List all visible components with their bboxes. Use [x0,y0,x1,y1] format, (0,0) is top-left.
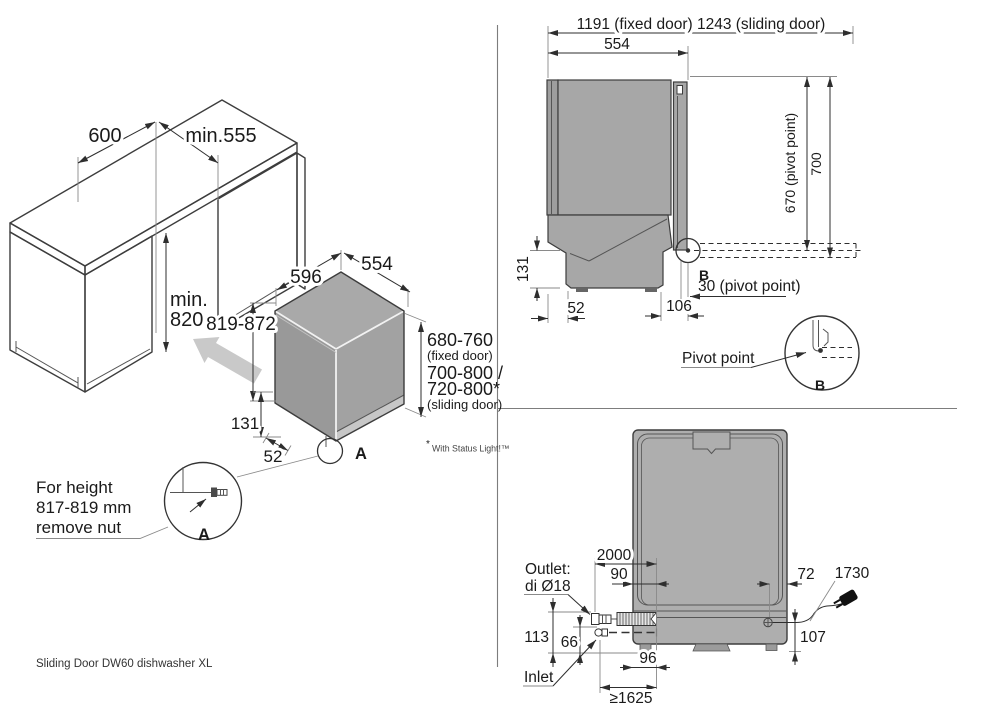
dim-drain-offset: 90 [610,566,628,583]
pivot-point-label: Pivot point [682,350,755,367]
dim-back-offset: 52 [567,300,584,317]
outlet-label-2: di Ø18 [525,578,571,595]
dim-body-depth: 554 [604,36,630,53]
dim-drain-edge-offset: 96 [639,650,656,667]
dim-drain-length: 2000 [597,547,632,564]
detail-a-mark: A [355,445,367,463]
dim-total-depth: 1191 (fixed door) 1243 (sliding door) [577,16,826,33]
dim-cord-offset: 72 [797,566,814,583]
status-note-star: * [426,439,430,450]
dim-pivot-offset: 106 [666,298,692,315]
dishwasher-plan-view: 2000 90 72 1730 107 113 66 96 ≥16 [523,430,870,707]
dim-inlet-length: ≥1625 [610,690,653,707]
dim-inlet-height: 66 [561,634,578,651]
dim-opening-height-2: 820 [170,309,203,331]
dim-pivot-note: 30 (pivot point) [698,278,801,295]
detail-a-label: A [198,526,210,544]
dim-kick-height: 131 [231,414,259,433]
dim-dw-width: 596 [290,267,322,288]
detail-b-mark: B [699,267,709,283]
dim-pivot-height: 670 (pivot point) [782,113,798,213]
dim-door-fixed: 680-760 [427,330,493,350]
detail-a: A For height 817-819 mm remove nut [36,456,318,544]
nut-icon [211,488,217,498]
drawing-title: Sliding Door DW60 dishwasher XL [36,658,213,670]
note-line3: remove nut [36,518,121,537]
dim-cord-length: 1730 [835,565,870,582]
outlet-connector-icon [592,614,600,625]
dim-door-fixed-note: (fixed door) [427,348,493,363]
dim-total-height: 700 [808,152,824,176]
detail-b: Pivot point B [681,316,859,393]
detail-a-marker-circle [318,439,343,464]
dim-opening-width: min.555 [185,125,256,147]
dishwasher-side-view: 1191 (fixed door) 1243 (sliding door) 55… [515,16,861,323]
note-line1: For height [36,478,113,497]
dim-cord-height: 107 [800,629,826,646]
inlet-label: Inlet [524,669,554,686]
installation-drawing-page: 600 min.555 min. 820 A 819-872 [0,0,1000,707]
dim-counter-width: 600 [88,125,121,147]
note-line2: 817-819 mm [36,498,131,517]
outlet-label-1: Outlet: [525,561,571,578]
power-plug-icon [832,589,858,611]
push-direction-arrow [193,337,262,384]
dim-dw-depth: 554 [361,254,393,275]
dishwasher-isometric: A 819-872 596 554 131 52 680-760 (fixed … [206,250,510,466]
cabinet-isometric-view: 600 min.555 min. 820 [10,100,305,392]
dim-kick-depth: 52 [264,447,283,466]
installation-drawing: 600 min.555 min. 820 A 819-872 [0,0,1000,707]
dim-base-height-side: 131 [515,256,532,282]
dim-door-sliding-note: (sliding door) [427,397,502,412]
dim-dw-height: 819-872 [206,314,276,335]
status-note: With Status Light!™ [432,444,510,454]
dim-door-sliding-2: 720-800* [427,379,500,399]
dim-opening-height-1: min. [170,289,208,311]
drain-hose-corrugated [617,613,657,626]
dim-outlet-height: 113 [524,629,549,646]
detail-b-label: B [815,377,825,393]
